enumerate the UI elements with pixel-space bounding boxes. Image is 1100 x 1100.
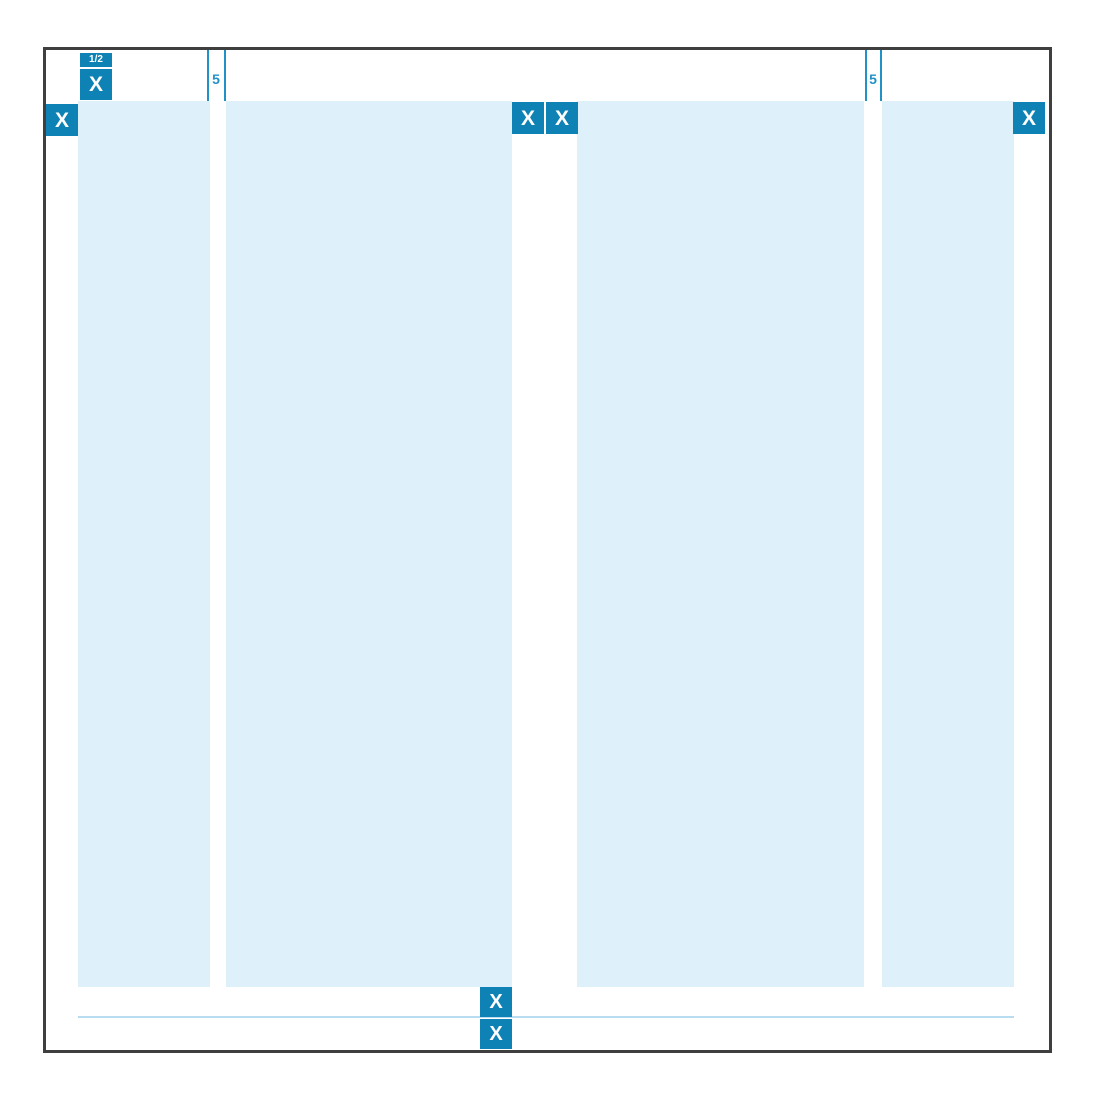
- small-gutter-tick-left-2: [224, 50, 226, 101]
- top-margin-x-badge: X: [80, 69, 112, 100]
- page-content-area: 5 5 1/2 X X X X X X X: [46, 50, 1049, 1050]
- grid-column-2: [226, 101, 512, 987]
- center-gutter-x-badge-right: X: [546, 102, 578, 134]
- bottom-margin-x-badge-upper: X: [480, 987, 512, 1017]
- half-x-unit-badge: 1/2: [80, 53, 112, 67]
- center-gutter-x-badge-left: X: [512, 102, 544, 134]
- grid-column-3: [577, 101, 864, 987]
- design-manual-page: 5 5 1/2 X X X X X X X: [0, 0, 1100, 1100]
- grid-column-1: [78, 101, 210, 987]
- footer-baseline-rule: [78, 1016, 1014, 1018]
- bottom-margin-x-badge-lower: X: [480, 1019, 512, 1049]
- small-gutter-label-left: 5: [208, 70, 224, 88]
- left-margin-x-badge: X: [46, 104, 78, 136]
- right-margin-x-badge: X: [1013, 102, 1045, 134]
- page-frame: 5 5 1/2 X X X X X X X: [43, 47, 1052, 1053]
- small-gutter-label-right: 5: [865, 70, 881, 88]
- grid-column-4: [882, 101, 1014, 987]
